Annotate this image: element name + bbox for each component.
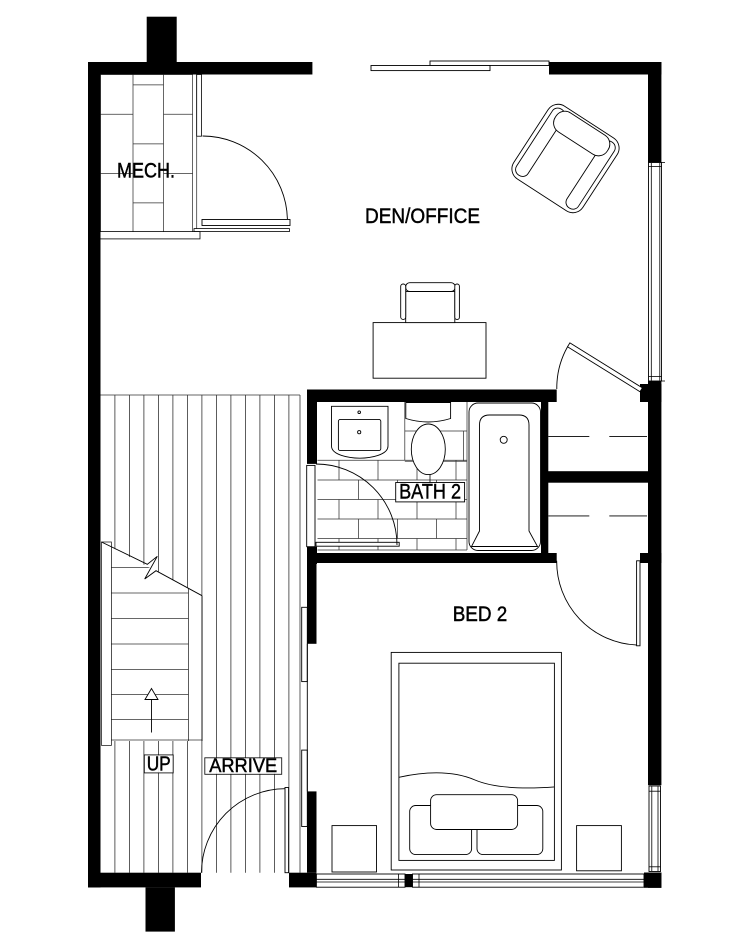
svg-text:BATH 2: BATH 2 — [399, 481, 461, 504]
svg-text:DEN/OFFICE: DEN/OFFICE — [365, 205, 480, 228]
svg-text:BED 2: BED 2 — [453, 603, 508, 626]
svg-text:UP: UP — [147, 753, 171, 775]
svg-text:ARRIVE: ARRIVE — [209, 756, 277, 777]
svg-text:MECH.: MECH. — [117, 159, 175, 182]
